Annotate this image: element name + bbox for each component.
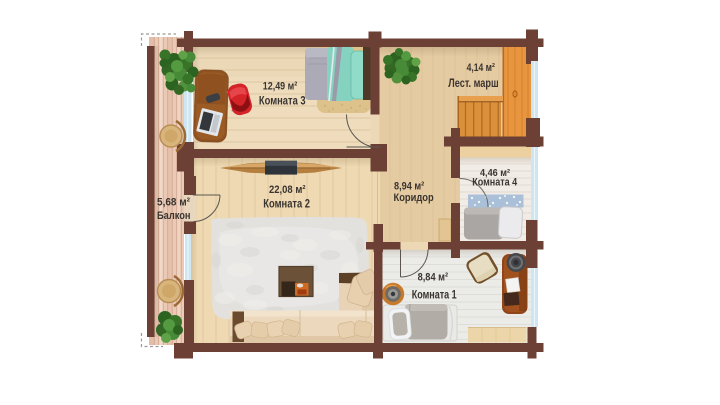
svg-text:4,14 м²: 4,14 м²: [467, 62, 496, 74]
svg-text:12,49 м²: 12,49 м²: [263, 81, 298, 93]
svg-text:Комната 1: Комната 1: [412, 287, 457, 301]
svg-text:5,68 м²: 5,68 м²: [157, 197, 190, 209]
svg-text:Коридор: Коридор: [394, 192, 434, 204]
svg-text:8,84 м²: 8,84 м²: [418, 271, 449, 283]
svg-text:Комната 3: Комната 3: [259, 93, 306, 107]
svg-text:Балкон: Балкон: [157, 210, 191, 222]
svg-text:Комната 4: Комната 4: [472, 177, 517, 189]
svg-text:8,94 м²: 8,94 м²: [394, 180, 424, 192]
svg-text:22,08 м²: 22,08 м²: [269, 184, 306, 196]
svg-text:Комната 2: Комната 2: [263, 196, 310, 210]
svg-text:Лест. марш: Лест. марш: [448, 76, 498, 90]
